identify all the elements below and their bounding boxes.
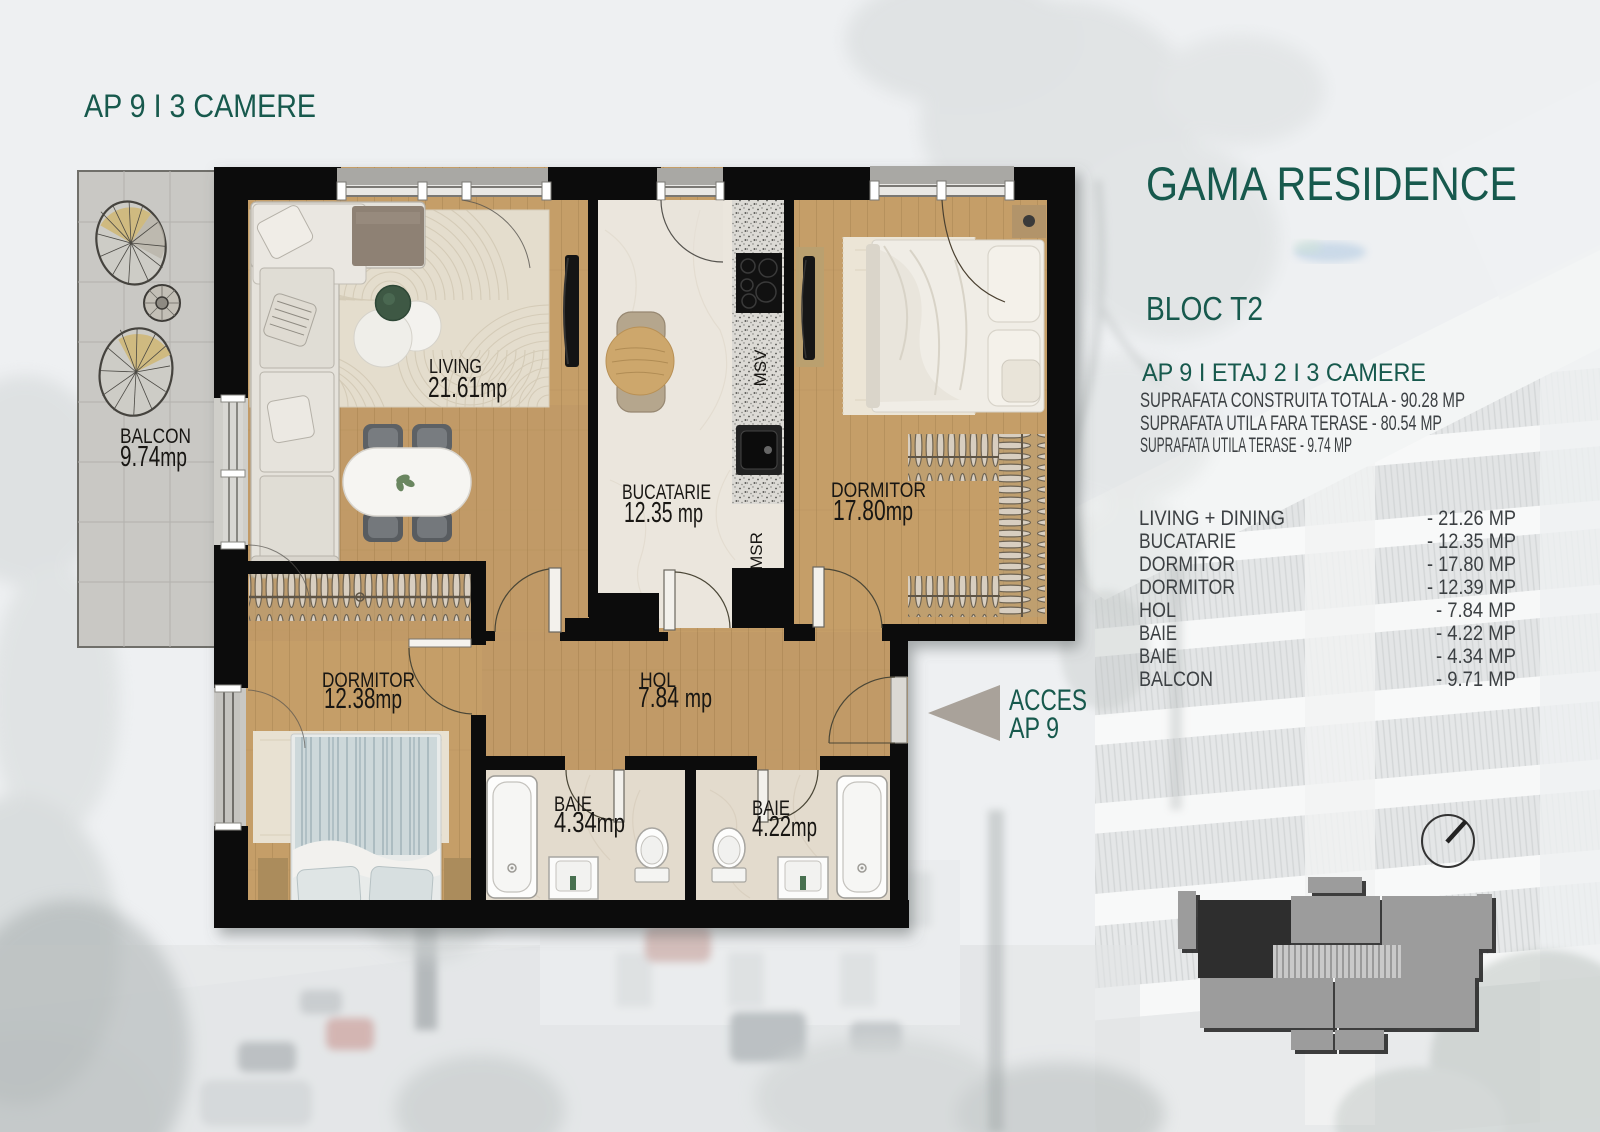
svg-text:- 21.26 MP: - 21.26 MP [1427,507,1516,530]
svg-text:MSV: MSV [751,349,770,387]
svg-text:BALCON: BALCON [1139,668,1213,691]
svg-text:12.38mp: 12.38mp [324,683,402,715]
svg-text:4.34mp: 4.34mp [554,807,625,839]
svg-text:AP 9 I ETAJ 2 I 3 CAMERE: AP 9 I ETAJ 2 I 3 CAMERE [1142,359,1426,387]
svg-text:21.61mp: 21.61mp [428,372,507,404]
svg-text:DORMITOR: DORMITOR [1139,553,1235,576]
svg-text:AP 9: AP 9 [1009,712,1059,745]
svg-text:- 12.35 MP: - 12.35 MP [1427,530,1516,553]
svg-text:DORMITOR: DORMITOR [1139,576,1235,599]
svg-text:SUPRAFATA CONSTRUITA TOTALA -: SUPRAFATA CONSTRUITA TOTALA - 90.28 MP [1140,389,1465,412]
svg-text:7.84 mp: 7.84 mp [638,682,712,714]
svg-text:12.35 mp: 12.35 mp [624,497,703,529]
svg-text:BUCATARIE: BUCATARIE [1139,530,1236,553]
svg-text:BAIE: BAIE [1139,622,1177,645]
svg-text:9.74mp: 9.74mp [120,441,187,473]
svg-text:MSR: MSR [747,532,766,570]
svg-text:SUPRAFATA UTILA TERASE - 9.74: SUPRAFATA UTILA TERASE - 9.74 MP [1140,434,1352,457]
svg-text:LIVING + DINING: LIVING + DINING [1139,507,1285,530]
svg-text:17.80mp: 17.80mp [833,495,913,527]
svg-text:BAIE: BAIE [1139,645,1177,668]
svg-text:- 4.34 MP: - 4.34 MP [1436,645,1516,668]
svg-text:- 4.22 MP: - 4.22 MP [1436,622,1516,645]
svg-text:- 12.39 MP: - 12.39 MP [1427,576,1516,599]
svg-text:- 17.80 MP: - 17.80 MP [1427,553,1516,576]
svg-text:HOL: HOL [1139,599,1176,622]
svg-text:SUPRAFATA UTILA FARA TERASE -: SUPRAFATA UTILA FARA TERASE - 80.54 MP [1140,412,1442,435]
svg-text:4.22mp: 4.22mp [752,811,817,843]
svg-text:- 9.71 MP: - 9.71 MP [1436,668,1516,691]
svg-text:BLOC T2: BLOC T2 [1146,290,1263,327]
svg-text:GAMA RESIDENCE: GAMA RESIDENCE [1146,157,1517,210]
svg-text:- 7.84 MP: - 7.84 MP [1436,599,1516,622]
svg-text:AP 9 I 3 CAMERE: AP 9 I 3 CAMERE [84,88,316,124]
